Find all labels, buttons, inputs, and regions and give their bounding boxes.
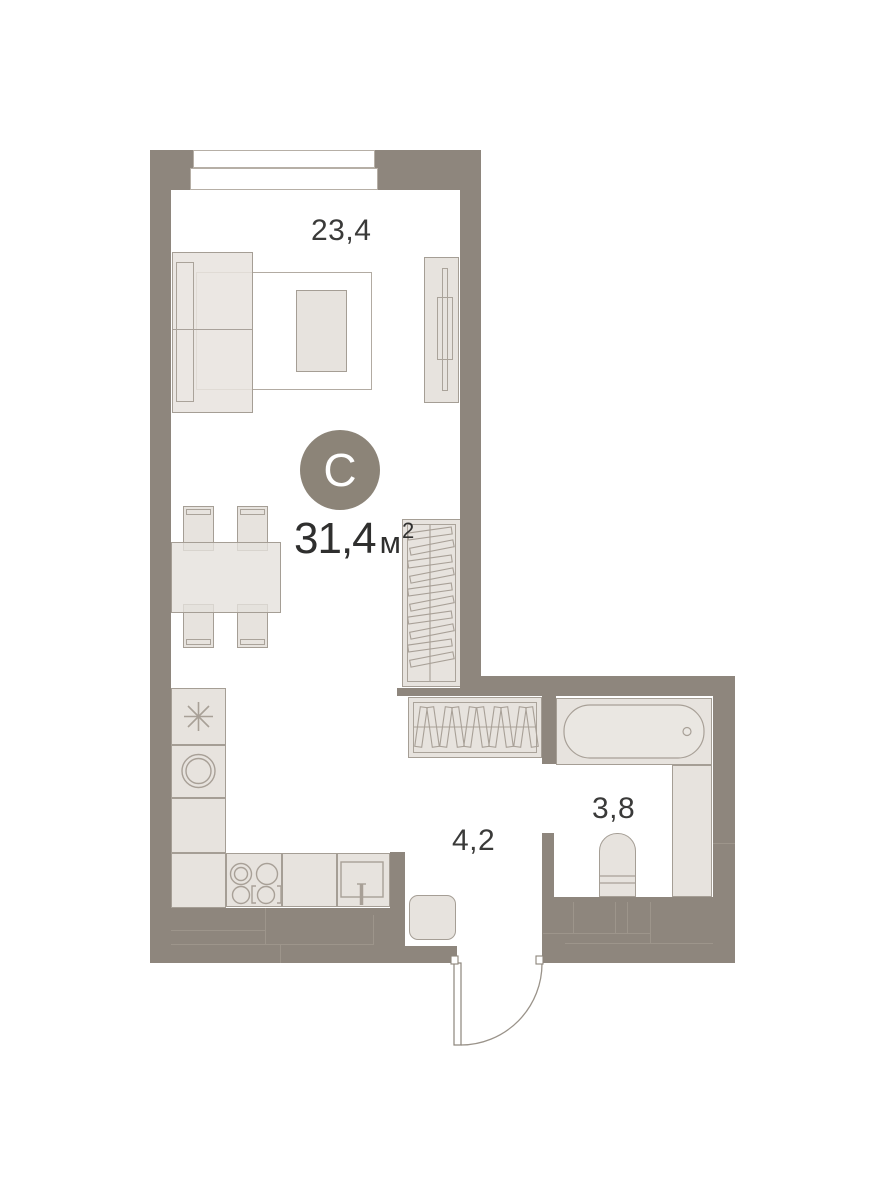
closet-hangers-icon [414,707,538,748]
toilet-tank-lines [600,876,635,883]
unit-type-badge: С [300,430,380,510]
total-area-label: 31,4 м 2 [294,517,414,561]
snowflake-icon [184,702,213,731]
total-area-exponent: 2 [402,520,414,542]
floor-plan: 23,4 С 31,4 м 2 4,2 3,8 [0,0,884,1200]
room-area-label-living: 23,4 [311,216,371,246]
entrance-door [451,956,543,1045]
room-area-label-hallway: 4,2 [452,826,495,856]
total-area-value: 31,4 [294,517,376,561]
door-swing-arc [461,963,542,1045]
door-hinge [536,956,543,964]
washer-drum-icon [182,755,215,788]
sink-icon [341,862,383,905]
stove-burners-icon [231,864,282,904]
bathtub-basin-icon [564,705,704,758]
door-hinge [451,956,458,964]
total-area-unit: м [380,527,401,558]
wardrobe-hangers-icon [408,525,455,681]
plan-symbols [0,0,884,1200]
door-leaf [454,963,461,1045]
room-area-label-bathroom: 3,8 [592,794,635,824]
